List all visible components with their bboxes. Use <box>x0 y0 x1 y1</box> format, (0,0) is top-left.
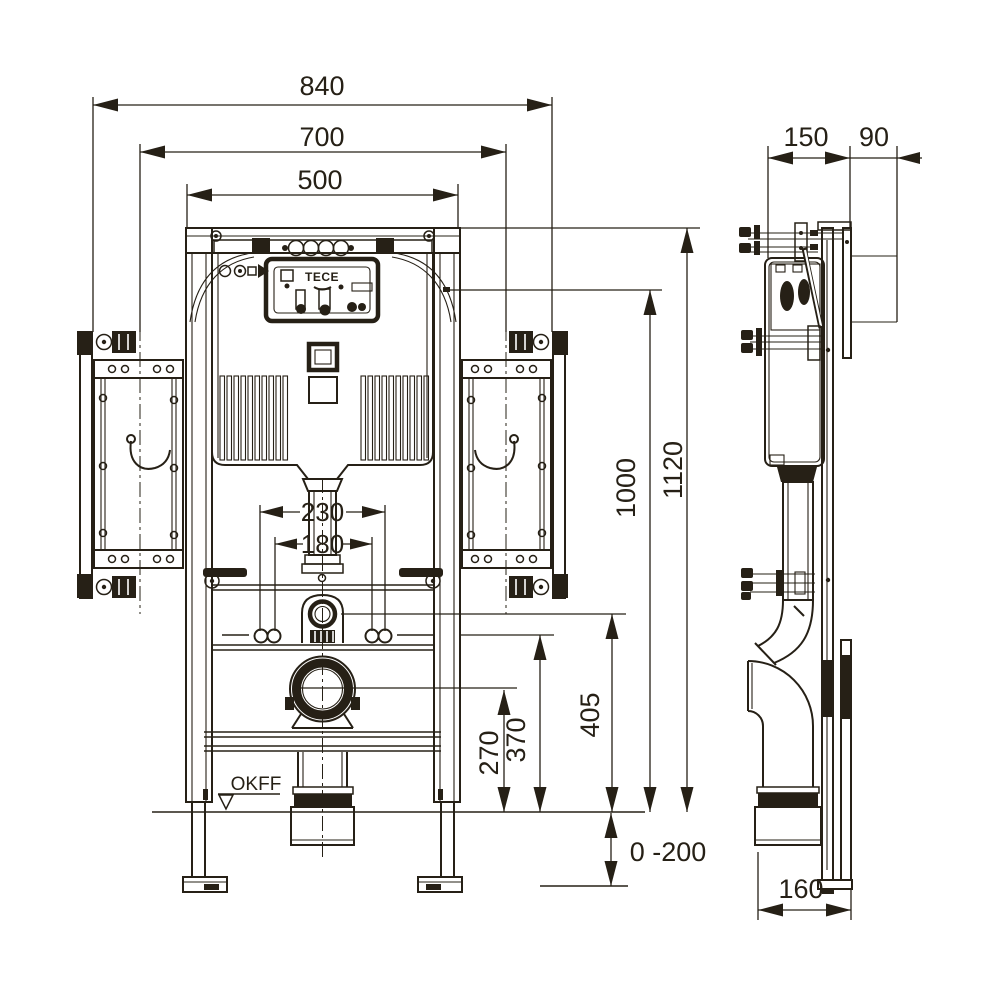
technical-drawing-page: 840 700 500 150 90 <box>0 0 1000 1000</box>
dim-160-label: 160 <box>778 874 823 904</box>
brand-logo: TECE <box>305 270 339 284</box>
side-top-bracket <box>739 222 851 261</box>
side-drain-elbow <box>748 661 821 845</box>
dim-1120-label: 1120 <box>658 441 688 499</box>
front-view: TECE <box>77 228 645 892</box>
dim-230-label: 230 <box>301 497 344 527</box>
dim-90-label: 90 <box>859 122 889 152</box>
side-cistern <box>765 248 824 482</box>
wall-section <box>851 256 897 322</box>
side-lower-bracket <box>741 568 815 600</box>
dim-270-label: 270 <box>474 730 504 775</box>
water-connection <box>220 264 270 278</box>
dim-500-label: 500 <box>297 165 342 195</box>
side-view: 160 <box>739 222 897 920</box>
foot-right <box>418 877 462 892</box>
dim-1000-label: 1000 <box>611 458 641 518</box>
inspection-window: TECE <box>266 259 378 321</box>
dim-840-label: 840 <box>299 71 344 101</box>
dimension-160: 160 <box>758 852 851 920</box>
dim-180-label: 180 <box>301 529 344 559</box>
cistern-ribs <box>220 376 429 460</box>
side-wall-rail-upper <box>843 228 851 358</box>
side-mid-bracket <box>741 326 822 360</box>
dimensions-vertical: 1120 1000 405 370 270 0 -200 <box>300 228 706 886</box>
dim-700-label: 700 <box>299 122 344 152</box>
foot-left <box>183 877 227 892</box>
technical-drawing: 840 700 500 150 90 <box>0 0 1000 1000</box>
dim-floor-adjust-label: 0 -200 <box>630 837 707 867</box>
dim-370-label: 370 <box>501 717 531 762</box>
floor-level-marker: OKFF <box>218 774 281 809</box>
outrigger-right <box>462 326 568 614</box>
outrigger-left <box>77 326 183 614</box>
dimensions-top-width: 840 700 500 <box>93 71 552 332</box>
dim-405-label: 405 <box>575 692 605 737</box>
dim-150-label: 150 <box>783 122 828 152</box>
okff-label: OKFF <box>231 774 282 795</box>
